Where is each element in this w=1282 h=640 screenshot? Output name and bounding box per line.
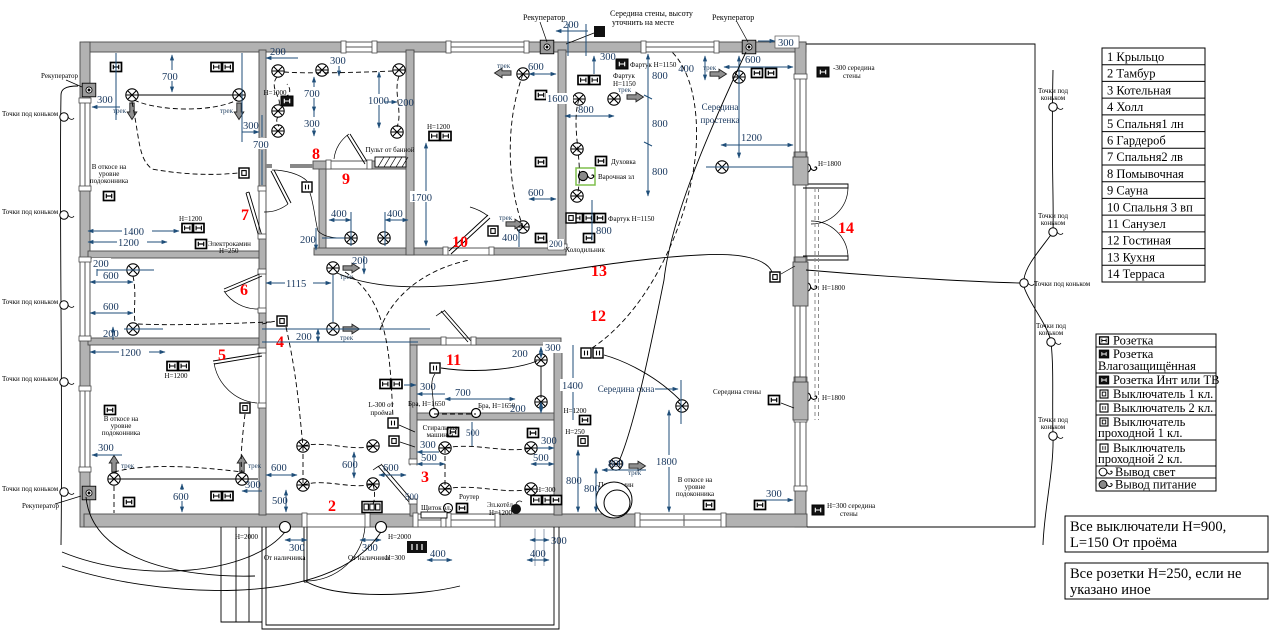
svg-text:1200: 1200: [120, 348, 141, 359]
svg-text:300: 300: [97, 95, 113, 106]
svg-text:Н=250: Н=250: [219, 247, 239, 255]
svg-text:200: 200: [93, 259, 109, 270]
svg-text:600: 600: [173, 492, 189, 503]
svg-text:500: 500: [405, 492, 419, 502]
svg-text:8 Помывочная: 8 Помывочная: [1107, 167, 1184, 181]
svg-text:800: 800: [652, 71, 668, 82]
svg-text:коньком: коньком: [1041, 219, 1066, 227]
svg-text:500: 500: [421, 453, 437, 464]
svg-text:Н=300: Н=300: [536, 486, 556, 494]
svg-text:Фартук Н=1150: Фартук Н=1150: [608, 215, 655, 223]
svg-text:200: 200: [270, 47, 286, 58]
svg-text:Фартук: Фартук: [613, 72, 636, 80]
svg-text:10: 10: [452, 234, 468, 251]
svg-text:Н=1200: Н=1200: [179, 215, 203, 223]
svg-text:машинка: машинка: [427, 431, 455, 439]
svg-text:Рекуператор: Рекуператор: [22, 502, 59, 510]
svg-text:8: 8: [312, 146, 320, 163]
svg-text:10 Спальня 3 вп: 10 Спальня 3 вп: [1107, 200, 1193, 214]
svg-text:200: 200: [300, 235, 316, 246]
svg-text:Н=1200: Н=1200: [427, 123, 451, 131]
svg-text:300: 300: [541, 436, 557, 447]
svg-text:5 Спальня1 лн: 5 Спальня1 лн: [1107, 117, 1184, 131]
svg-text:Вывод питание: Вывод питание: [1115, 478, 1197, 492]
svg-text:Варочная зл: Варочная зл: [598, 173, 635, 181]
svg-text:Н=1800: Н=1800: [822, 394, 846, 402]
svg-text:12 Гостиная: 12 Гостиная: [1107, 234, 1171, 248]
svg-text:Все выключатели Н=900,: Все выключатели Н=900,: [1070, 519, 1226, 535]
svg-text:Н=2000: Н=2000: [235, 533, 259, 541]
svg-text:600: 600: [383, 463, 399, 474]
svg-text:400: 400: [502, 233, 518, 244]
svg-text:коньком: коньком: [1041, 94, 1066, 102]
svg-text:300: 300: [545, 343, 561, 354]
svg-text:Выключатель 2 кл.: Выключатель 2 кл.: [1113, 401, 1213, 415]
svg-text:Н=2000: Н=2000: [388, 533, 412, 541]
svg-text:1115: 1115: [286, 279, 306, 290]
svg-text:400: 400: [430, 549, 446, 560]
svg-text:Н=300 середина: Н=300 середина: [827, 502, 876, 510]
svg-text:трек: трек: [703, 64, 717, 72]
svg-text:600: 600: [528, 62, 544, 73]
svg-text:200: 200: [549, 239, 563, 249]
svg-text:коньком: коньком: [1039, 329, 1064, 337]
svg-text:1200: 1200: [741, 133, 762, 144]
svg-text:Н=1200: Н=1200: [164, 372, 188, 380]
svg-text:Розетка: Розетка: [1113, 334, 1154, 348]
svg-text:1800: 1800: [656, 457, 677, 468]
svg-text:600: 600: [745, 55, 761, 66]
svg-text:Н=1200: Н=1200: [563, 407, 587, 415]
svg-text:Рекуператор: Рекуператор: [41, 72, 78, 80]
svg-text:Выключатель 1 кл.: Выключатель 1 кл.: [1113, 387, 1213, 401]
svg-text:800: 800: [584, 484, 600, 495]
svg-text:300: 300: [362, 543, 378, 554]
svg-text:300: 300: [551, 536, 567, 547]
svg-text:9: 9: [342, 171, 350, 188]
svg-text:трек: трек: [618, 86, 632, 94]
svg-text:проходной 1 кл.: проходной 1 кл.: [1098, 426, 1182, 440]
svg-text:800: 800: [578, 105, 594, 116]
svg-text:600: 600: [528, 188, 544, 199]
svg-text:7: 7: [241, 207, 249, 224]
svg-text:200: 200: [563, 20, 579, 31]
svg-text:800: 800: [652, 119, 668, 130]
svg-text:трек: трек: [248, 462, 262, 470]
svg-text:1700: 1700: [411, 193, 432, 204]
svg-text:Точки под коньком: Точки под коньком: [2, 298, 59, 306]
svg-text:-300 середина: -300 середина: [833, 64, 875, 72]
svg-text:Розетка Инт или ТВ: Розетка Инт или ТВ: [1113, 373, 1219, 387]
svg-text:200: 200: [398, 98, 414, 109]
svg-text:Точки под коньком: Точки под коньком: [2, 375, 59, 383]
svg-text:Середина стены, высоту: Середина стены, высоту: [610, 9, 693, 18]
svg-text:Н=1000: Н=1000: [263, 89, 287, 97]
svg-text:300: 300: [766, 489, 782, 500]
svg-text:Духовка: Духовка: [611, 158, 637, 166]
svg-text:Точки под коньком: Точки под коньком: [2, 110, 59, 118]
svg-text:300: 300: [420, 440, 436, 451]
svg-text:трек: трек: [220, 107, 234, 115]
svg-text:L=150 От проёма: L=150 От проёма: [1070, 535, 1178, 551]
svg-text:Точки под коньком: Точки под коньком: [1034, 280, 1091, 288]
svg-text:Точки под коньком: Точки под коньком: [2, 485, 59, 493]
svg-text:простенка: простенка: [700, 115, 739, 125]
svg-text:1 Крыльцо: 1 Крыльцо: [1107, 50, 1164, 64]
svg-text:Н=250: Н=250: [565, 428, 585, 436]
svg-text:2 Тамбур: 2 Тамбур: [1107, 67, 1156, 81]
svg-text:2: 2: [328, 498, 336, 515]
svg-text:Щиток эл.: Щиток эл.: [421, 504, 452, 512]
svg-text:11 Санузел: 11 Санузел: [1107, 217, 1166, 231]
svg-text:Эл.котёл: Эл.котёл: [487, 501, 513, 509]
svg-text:300: 300: [289, 543, 305, 554]
svg-text:800: 800: [652, 167, 668, 178]
svg-text:подоконника: подоконника: [102, 429, 141, 437]
svg-text:Влагозащищённая: Влагозащищённая: [1098, 359, 1196, 373]
svg-text:Бра, Н=1650: Бра, Н=1650: [408, 400, 446, 408]
svg-text:700: 700: [455, 388, 471, 399]
svg-text:400: 400: [530, 549, 546, 560]
svg-text:5: 5: [218, 347, 226, 364]
svg-text:500: 500: [533, 453, 549, 464]
svg-text:400: 400: [387, 209, 403, 220]
svg-text:1200: 1200: [118, 238, 139, 249]
svg-text:200: 200: [352, 256, 368, 267]
svg-text:6 Гардероб: 6 Гардероб: [1107, 134, 1166, 148]
svg-text:4 Холл: 4 Холл: [1107, 100, 1143, 114]
svg-text:600: 600: [103, 271, 119, 282]
svg-text:Роутер: Роутер: [459, 493, 480, 501]
svg-text:трек: трек: [499, 214, 513, 222]
svg-text:трек: трек: [497, 62, 511, 70]
svg-text:500: 500: [466, 428, 480, 438]
svg-text:1400: 1400: [562, 381, 583, 392]
svg-text:600: 600: [271, 463, 287, 474]
svg-text:Точки под коньком: Точки под коньком: [2, 208, 59, 216]
svg-text:700: 700: [304, 89, 320, 100]
svg-text:200: 200: [512, 349, 528, 360]
svg-text:11: 11: [446, 352, 461, 369]
svg-text:Все розетки Н=250, если не: Все розетки Н=250, если не: [1070, 566, 1241, 582]
svg-text:1600: 1600: [547, 94, 568, 105]
svg-text:Фартук Н=1150: Фартук Н=1150: [630, 61, 677, 69]
svg-text:проёма: проёма: [370, 409, 392, 417]
svg-text:подоконника: подоконника: [90, 177, 129, 185]
svg-text:600: 600: [342, 460, 358, 471]
svg-text:L-300 от: L-300 от: [368, 401, 393, 409]
svg-text:Рекуператор: Рекуператор: [712, 13, 754, 22]
svg-text:От наличника: От наличника: [348, 554, 390, 562]
svg-text:Н=1200: Н=1200: [489, 509, 513, 517]
svg-text:Рекуператор: Рекуператор: [523, 13, 565, 22]
svg-text:200: 200: [103, 329, 119, 340]
svg-text:стены: стены: [840, 510, 858, 518]
svg-text:От наличника: От наличника: [264, 554, 306, 562]
svg-text:7 Спальня2 лв: 7 Спальня2 лв: [1107, 150, 1183, 164]
svg-text:14 Терраса: 14 Терраса: [1107, 267, 1165, 281]
svg-text:300: 300: [98, 443, 114, 454]
svg-text:800: 800: [596, 226, 612, 237]
svg-text:Н=1800: Н=1800: [818, 160, 842, 168]
svg-text:1400: 1400: [123, 227, 144, 238]
svg-text:12: 12: [590, 308, 606, 325]
svg-text:700: 700: [162, 72, 178, 83]
svg-text:проходной 2 кл.: проходной 2 кл.: [1098, 452, 1182, 466]
svg-text:13 Кухня: 13 Кухня: [1107, 250, 1155, 264]
svg-text:трек: трек: [113, 107, 127, 115]
svg-text:800: 800: [608, 459, 624, 470]
svg-text:700: 700: [253, 140, 269, 151]
svg-text:300: 300: [778, 38, 794, 49]
svg-text:Середина окна: Середина окна: [598, 384, 655, 394]
svg-text:подоконника: подоконника: [676, 490, 715, 498]
svg-text:800: 800: [566, 476, 582, 487]
svg-text:Середина: Середина: [702, 102, 739, 112]
svg-text:400: 400: [331, 209, 347, 220]
svg-text:600: 600: [103, 302, 119, 313]
svg-text:трек: трек: [340, 334, 354, 342]
svg-text:уточнить на месте: уточнить на месте: [612, 18, 675, 27]
svg-text:300: 300: [330, 56, 346, 67]
svg-text:Н=1800: Н=1800: [822, 284, 846, 292]
svg-text:200: 200: [510, 404, 526, 415]
svg-text:300: 300: [420, 382, 436, 393]
svg-text:Холодильник: Холодильник: [565, 246, 605, 254]
svg-text:коньком: коньком: [1041, 423, 1066, 431]
svg-text:6: 6: [240, 282, 248, 299]
svg-text:3 Котельная: 3 Котельная: [1107, 83, 1171, 97]
svg-text:300: 300: [245, 480, 261, 491]
svg-text:14: 14: [838, 220, 854, 237]
svg-text:300: 300: [304, 119, 320, 130]
svg-text:3: 3: [421, 469, 429, 486]
svg-text:9 Сауна: 9 Сауна: [1107, 184, 1149, 198]
svg-text:Пульт от банной: Пульт от банной: [365, 146, 414, 154]
svg-text:Середина стены: Середина стены: [713, 388, 761, 396]
svg-text:300: 300: [600, 52, 616, 63]
svg-text:указано иное: указано иное: [1070, 582, 1151, 598]
svg-text:300: 300: [243, 121, 259, 132]
svg-text:200: 200: [296, 332, 312, 343]
svg-text:стены: стены: [843, 72, 861, 80]
svg-text:500: 500: [272, 496, 288, 507]
